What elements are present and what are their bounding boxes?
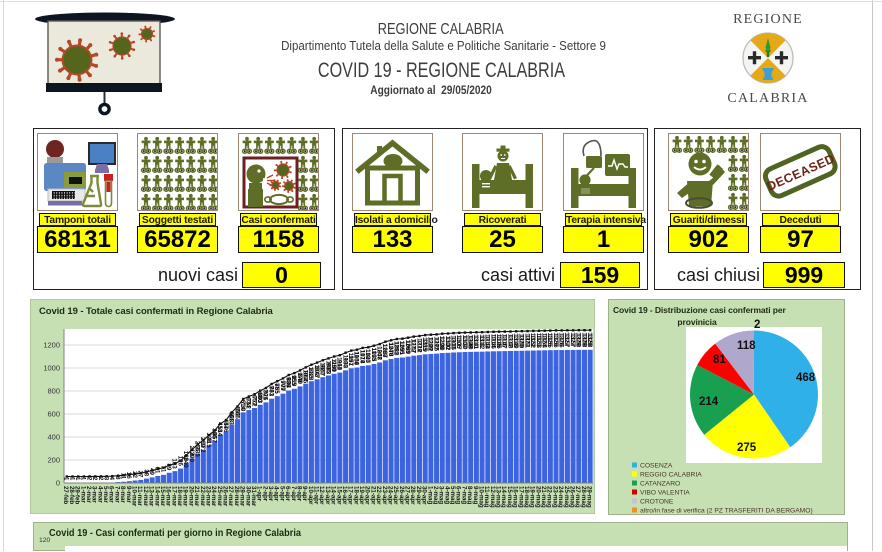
svg-text:COSENZA: COSENZA	[640, 462, 673, 469]
svg-text:CROTONE: CROTONE	[640, 498, 674, 505]
svg-text:provinicia: provinicia	[677, 317, 717, 327]
svg-text:275: 275	[737, 442, 757, 454]
svg-text:REGIONE: REGIONE	[733, 12, 803, 27]
svg-text:1200: 1200	[43, 340, 60, 349]
svg-text:600: 600	[47, 409, 60, 418]
svg-text:altro/in fase di verifica (2 P: altro/in fase di verifica (2 PZ TRASFERI…	[640, 507, 813, 514]
svg-text:VIBO VALENTIA: VIBO VALENTIA	[640, 489, 690, 496]
svg-text:81: 81	[713, 354, 726, 366]
svg-text:468: 468	[796, 372, 816, 384]
svg-text:200: 200	[47, 455, 60, 464]
svg-text:800: 800	[47, 386, 60, 395]
svg-text:29-mag: 29-mag	[586, 486, 593, 508]
svg-text:1000: 1000	[43, 363, 60, 372]
svg-text:400: 400	[47, 432, 60, 441]
svg-text:CALABRIA: CALABRIA	[727, 91, 808, 106]
svg-text:214: 214	[699, 396, 719, 408]
svg-text:2: 2	[754, 319, 760, 331]
svg-text:0: 0	[56, 478, 60, 487]
svg-text:CATANZARO: CATANZARO	[640, 480, 680, 487]
svg-text:Covid 19 - Totale casi conferm: Covid 19 - Totale casi confermati in Reg…	[39, 306, 273, 317]
svg-text:1328: 1328	[586, 332, 593, 346]
svg-text:REGGIO CALABRIA: REGGIO CALABRIA	[640, 471, 702, 478]
svg-text:118: 118	[737, 340, 756, 352]
svg-text:Covid 19 - Distribuzione casi: Covid 19 - Distribuzione casi confermati…	[613, 305, 787, 315]
